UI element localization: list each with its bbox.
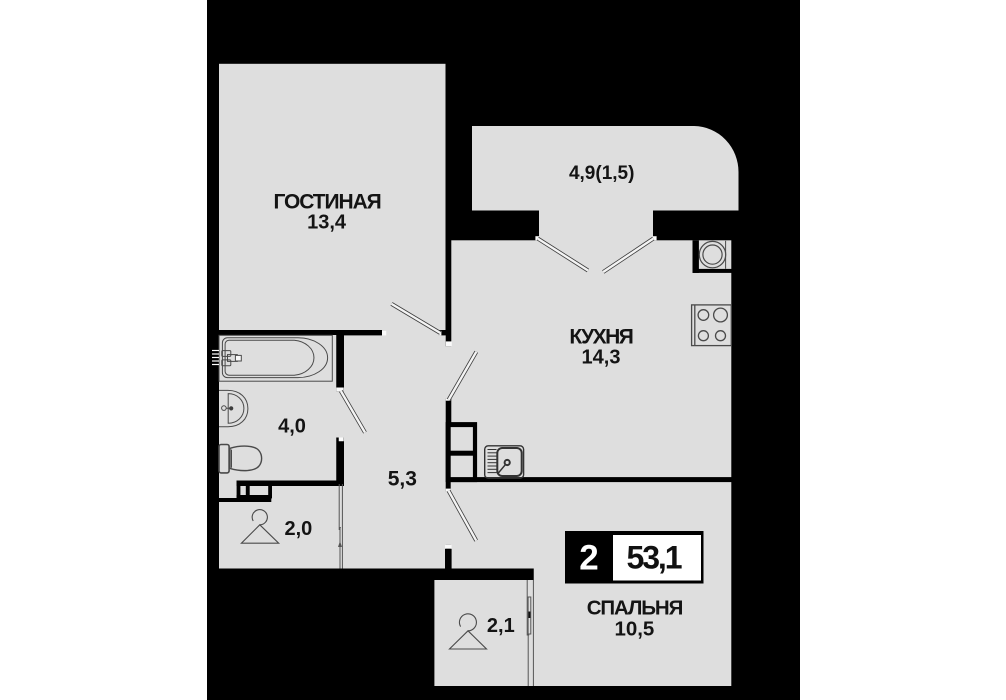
svg-text:4,0: 4,0	[278, 416, 306, 438]
svg-text:4,9(1,5): 4,9(1,5)	[569, 163, 634, 184]
svg-text:5,3: 5,3	[388, 468, 417, 491]
svg-text:2: 2	[579, 539, 598, 578]
svg-text:2,0: 2,0	[284, 518, 312, 540]
svg-text:53,1: 53,1	[627, 540, 683, 576]
svg-text:КУХНЯ: КУХНЯ	[569, 325, 633, 348]
svg-text:13,4: 13,4	[307, 211, 347, 233]
svg-text:2,1: 2,1	[487, 615, 515, 637]
svg-text:10,5: 10,5	[614, 617, 654, 640]
svg-text:СПАЛЬНЯ: СПАЛЬНЯ	[587, 597, 684, 620]
svg-text:ГОСТИНАЯ: ГОСТИНАЯ	[273, 190, 381, 213]
svg-text:14,3: 14,3	[582, 346, 621, 368]
